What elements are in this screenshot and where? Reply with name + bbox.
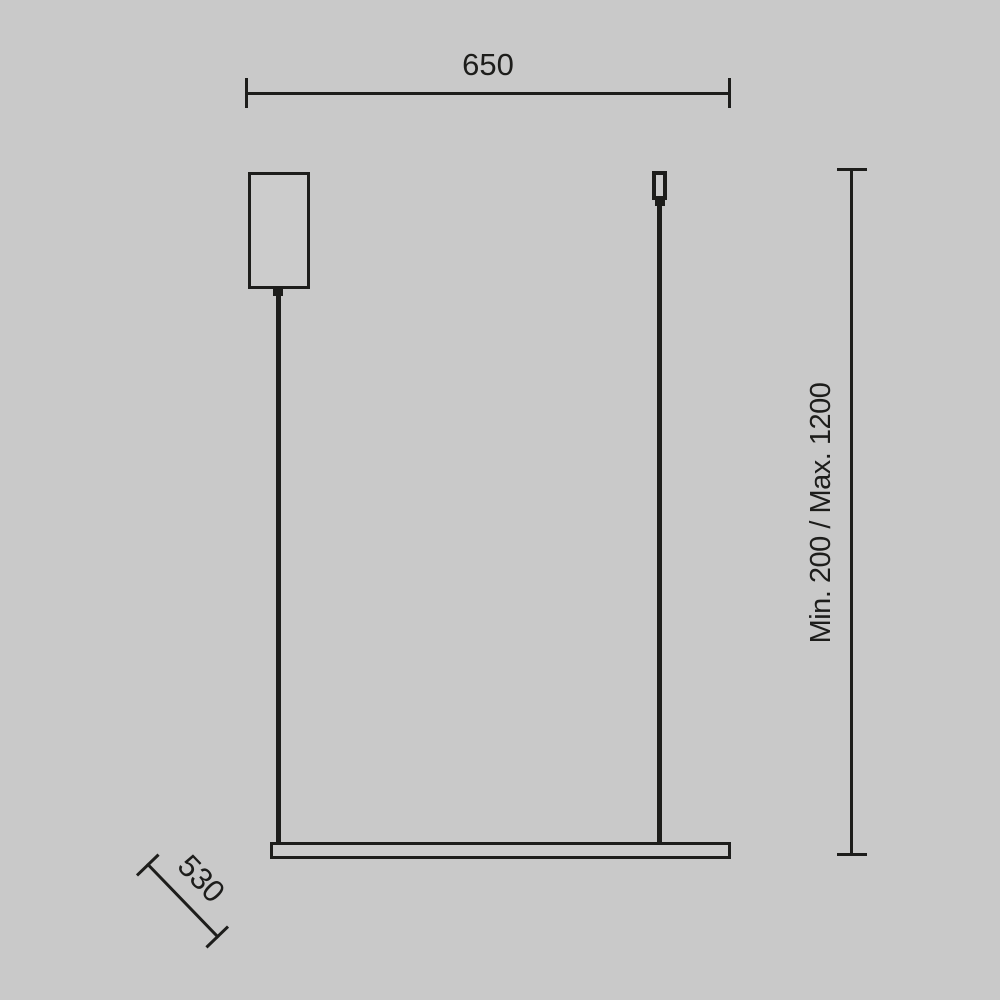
height-dimension-tick-top <box>837 168 867 171</box>
linear-light-bar <box>270 842 731 859</box>
width-dimension-tick-right <box>728 78 731 108</box>
width-dimension-tick-left <box>245 78 248 108</box>
height-dimension-line <box>850 169 853 856</box>
left-suspension-cable <box>276 295 281 843</box>
height-dimension-tick-bottom <box>837 853 867 856</box>
ceiling-canopy <box>248 172 310 289</box>
width-dimension-line <box>246 92 730 95</box>
width-dimension-label: 650 <box>246 49 730 81</box>
dimension-diagram: 650 Min. 200 / Max. 1200 530 <box>0 0 1000 1000</box>
height-dimension-label: Min. 200 / Max. 1200 <box>805 383 837 644</box>
right-suspension-cable <box>657 205 662 843</box>
right-cord-grip <box>652 171 667 200</box>
